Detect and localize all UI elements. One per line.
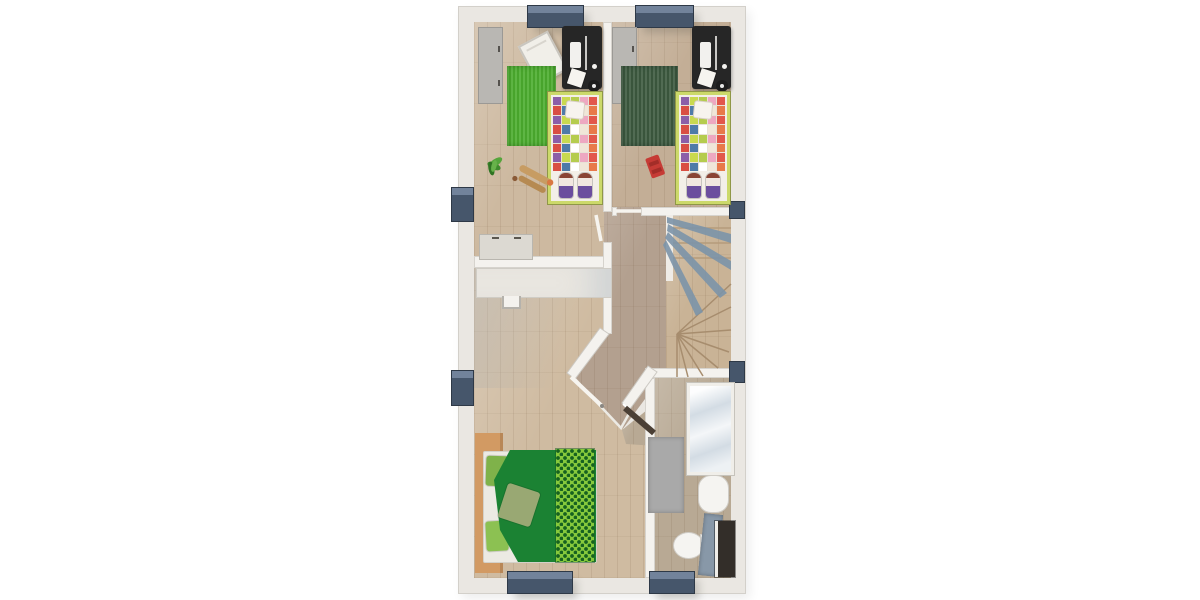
detail-overlay: [0, 0, 1200, 600]
stair-winder-treads: [677, 284, 731, 377]
dresser-handle: [492, 237, 499, 239]
wooden-toy: [511, 163, 554, 198]
master-bedroom-door: [571, 377, 603, 407]
bed-pillow: [694, 101, 713, 119]
red-toy-car: [645, 154, 665, 179]
potted-plant: [486, 155, 504, 176]
bed-pillow: [566, 101, 585, 119]
wall-diagonal-master: [567, 328, 609, 379]
wall-diagonal-stairwell: [622, 366, 657, 409]
floorplan-canvas: [0, 0, 1200, 600]
white-dresser: [479, 234, 533, 260]
dresser-handle: [514, 237, 521, 239]
kids-left-door: [596, 215, 601, 241]
stair-railing: [663, 217, 731, 316]
door-hinge: [600, 404, 604, 408]
bathroom-door: [625, 408, 654, 433]
